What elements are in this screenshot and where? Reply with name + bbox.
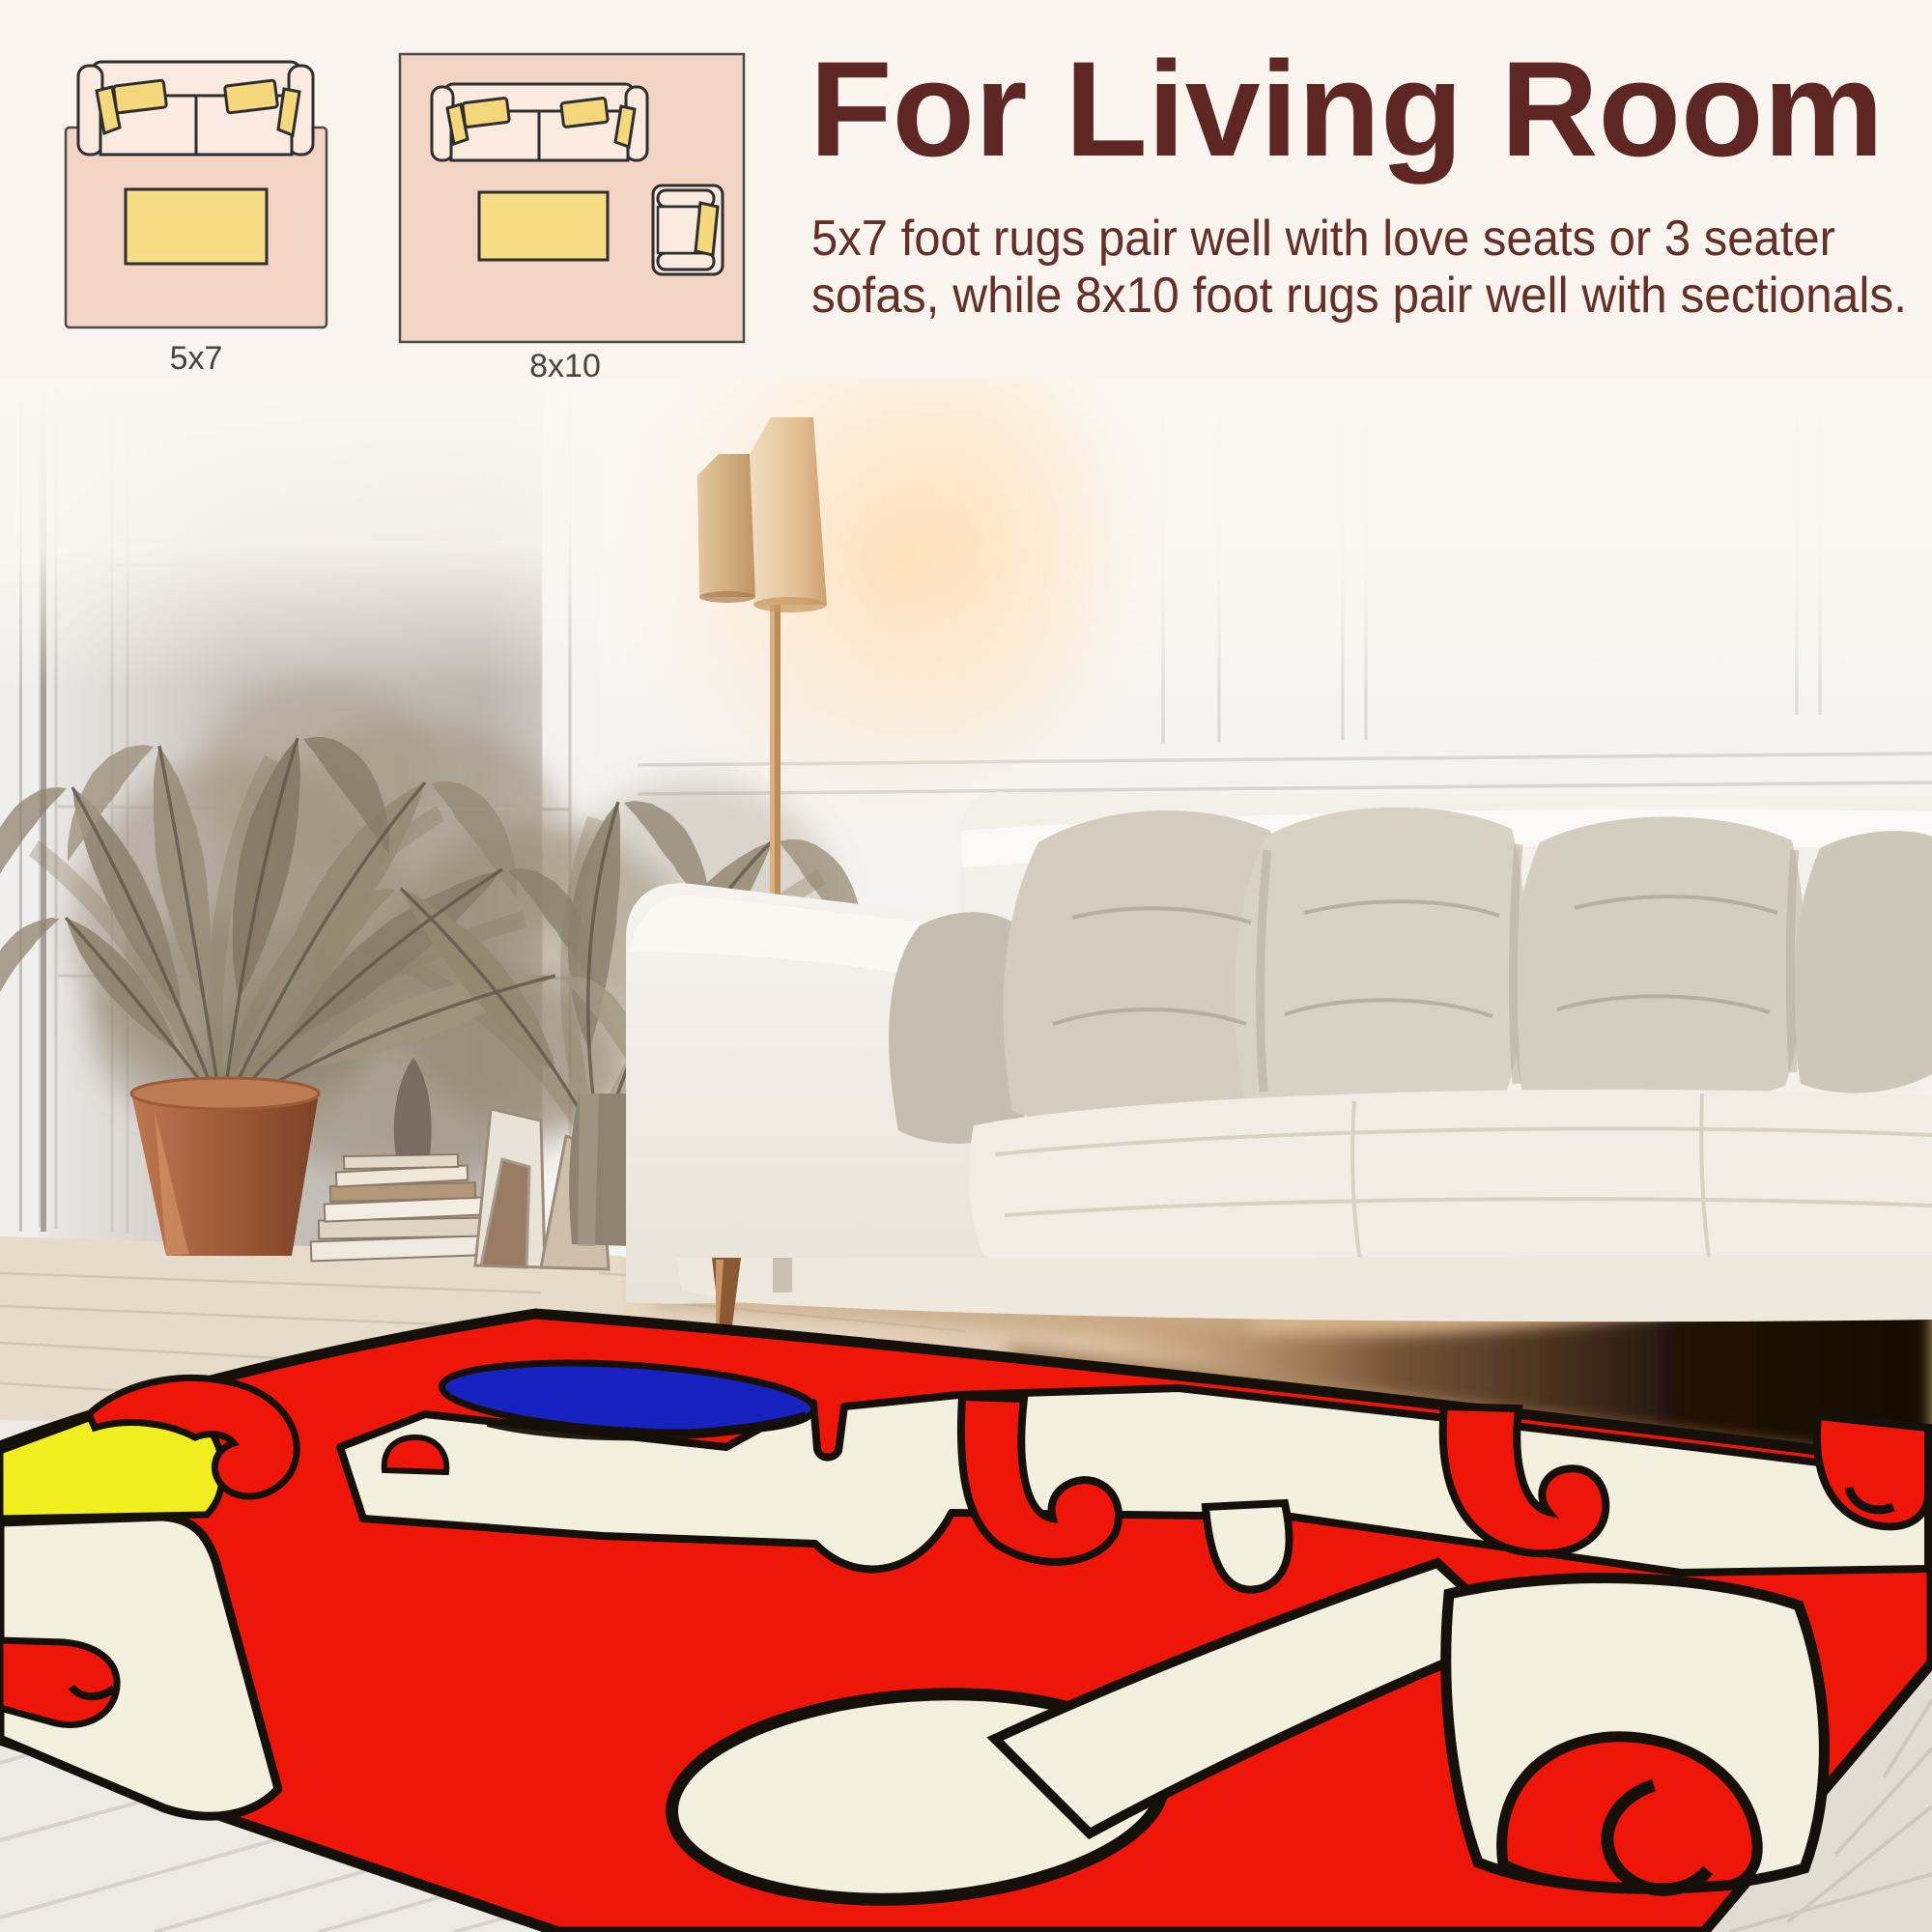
svg-text:For Living Room: For Living Room [810, 33, 1884, 185]
svg-text:8x10: 8x10 [529, 348, 601, 384]
svg-text:5x7 foot rugs pair well with l: 5x7 foot rugs pair well with love seats … [811, 211, 1835, 267]
svg-text:5x7: 5x7 [170, 340, 223, 377]
svg-text:sofas, while 8x10 foot rugs pa: sofas, while 8x10 foot rugs pair well wi… [811, 268, 1907, 324]
